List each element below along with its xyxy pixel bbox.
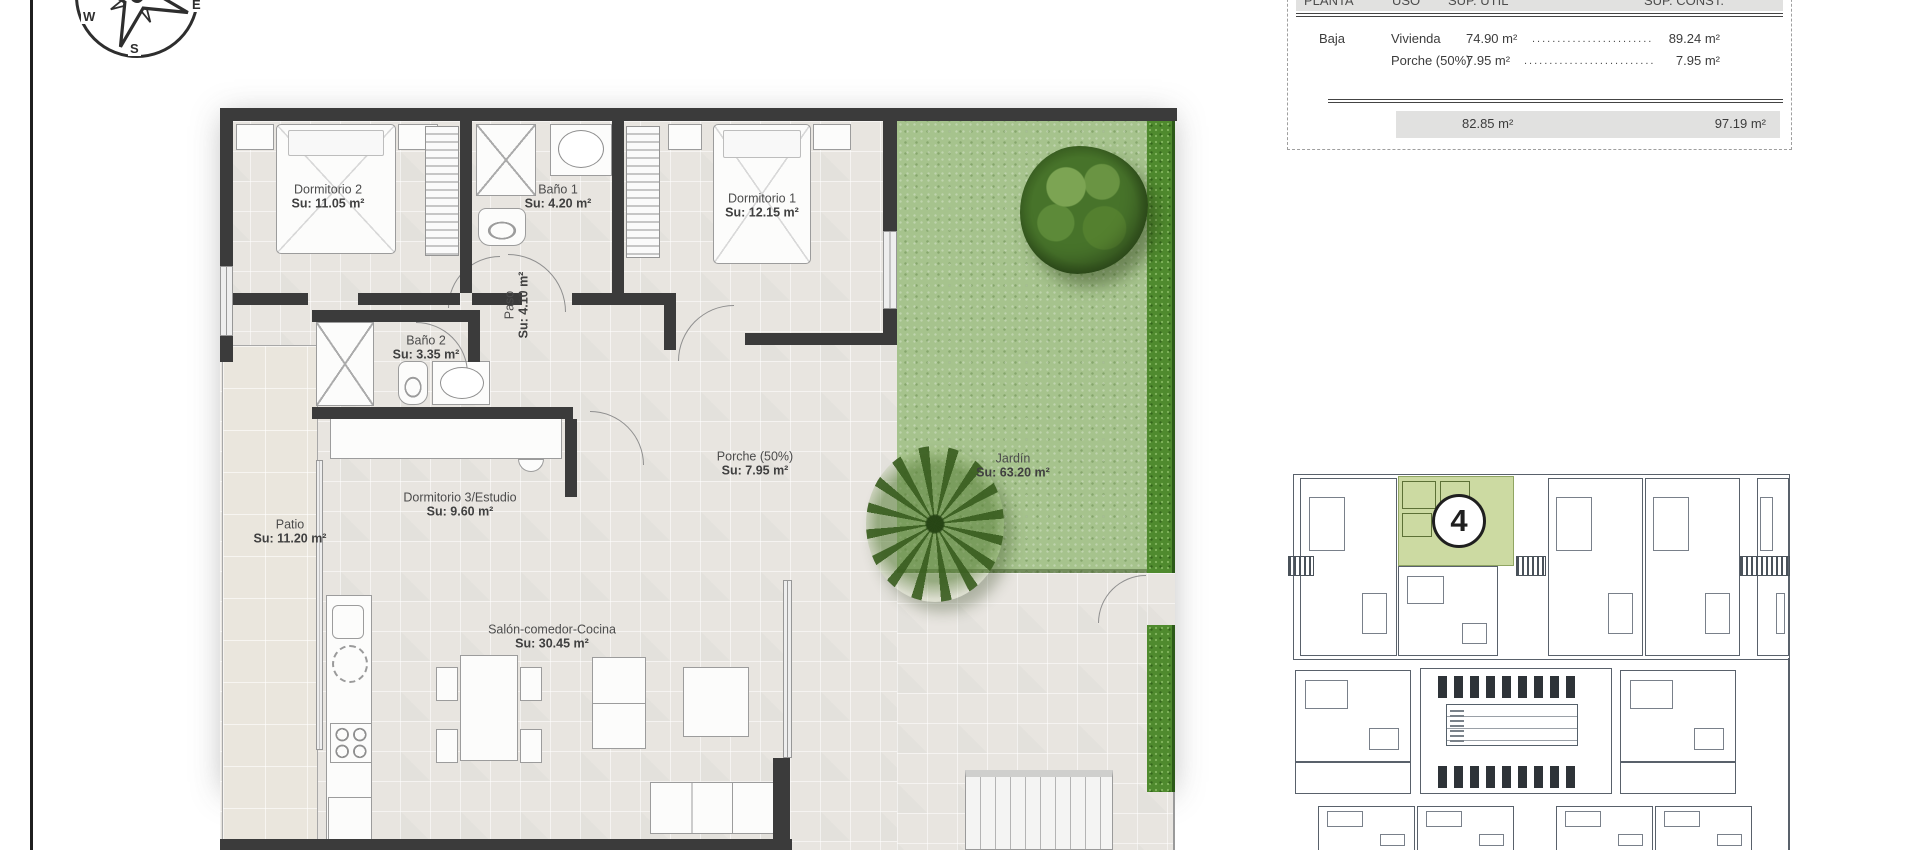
nightstand (668, 124, 702, 150)
total-sup-const: 97.19 m² (1715, 116, 1766, 131)
stairs-hatch (1288, 556, 1314, 576)
header-uso: USO (1392, 0, 1420, 8)
room-label-salon: Salón-comedor-Cocina Su: 30.45 m² (488, 623, 616, 652)
site-apartment-block (1645, 478, 1740, 656)
header-sup-const: SUP. CONST. (1644, 0, 1724, 8)
cell-planta: Baja (1319, 31, 1345, 46)
stairs-hatch (1516, 556, 1546, 576)
room-label-porche: Porche (50%) Su: 7.95 m² (717, 450, 793, 479)
sheet-border-line (30, 0, 33, 850)
stove (330, 723, 372, 763)
cell-sup-const: 89.24 m² (1656, 31, 1720, 46)
room-area: Su: 4.10 m² (517, 272, 531, 339)
dining-table (460, 655, 518, 761)
table-rule (1296, 13, 1783, 17)
site-apartment-block (1295, 670, 1411, 762)
gate-opening (1147, 573, 1175, 625)
table-header-row: PLANTA USO SUP. ÚTIL SUP. CONST. (1296, 0, 1783, 11)
bed-pillow (723, 130, 801, 158)
wall-segment (312, 310, 480, 322)
wall-segment (312, 407, 573, 419)
cooktop (332, 645, 368, 683)
room-name: Baño 2 (393, 334, 460, 348)
room-name: Dormitorio 2 (292, 183, 365, 197)
cell-sup-const: 7.95 m² (1656, 53, 1720, 68)
window (883, 231, 897, 309)
patio-glazing (316, 460, 323, 750)
room-name: Jardín (976, 452, 1050, 466)
wardrobe (425, 126, 459, 256)
wall-segment (572, 293, 676, 305)
room-label-dormitorio-2: Dormitorio 2 Su: 11.05 m² (292, 183, 365, 212)
salon-glazing (783, 580, 792, 758)
room-area: Su: 30.45 m² (488, 637, 616, 651)
wall-segment (220, 336, 233, 362)
wall-segment (468, 322, 480, 362)
site-apartment-block (1318, 806, 1415, 850)
sun-loungers (1438, 766, 1580, 788)
floor-plan: Dormitorio 2 Su: 11.05 m² Baño 1 Su: 4.2… (220, 108, 1177, 850)
sun-loungers (1438, 676, 1580, 698)
swimming-pool (1446, 704, 1578, 746)
site-apartment-block (1548, 478, 1643, 656)
wall-segment (233, 293, 308, 305)
room-name: Dormitorio 1 (725, 192, 799, 206)
exterior-steps (965, 770, 1113, 850)
site-apartment-block (1398, 566, 1498, 656)
site-apartment-block (1620, 670, 1736, 762)
room-area: Su: 7.95 m² (717, 464, 793, 478)
site-edge-line (1788, 658, 1790, 850)
nightstand (813, 124, 851, 150)
wall-segment (612, 121, 624, 293)
room-label-jardin: Jardín Su: 63.20 m² (976, 452, 1050, 481)
kitchen-sink (332, 605, 364, 639)
room-name: Porche (50%) (717, 450, 793, 464)
bed-pillow (288, 130, 384, 156)
unit-number: 4 (1450, 503, 1467, 539)
site-wing-outline (1620, 762, 1736, 794)
leader-dots: ........................................… (1532, 33, 1654, 45)
site-apartment-block (1300, 478, 1397, 656)
room-area: Su: 3.35 m² (393, 348, 460, 362)
site-wing-outline (1295, 762, 1411, 794)
wall-segment (358, 293, 460, 305)
room-name: Baño 1 (525, 183, 592, 197)
total-sup-util: 82.85 m² (1462, 116, 1513, 131)
sofa-three-seat (650, 782, 775, 834)
sink (558, 130, 604, 168)
room-area: Su: 4.20 m² (525, 197, 592, 211)
nightstand (236, 124, 274, 150)
wall-segment (883, 121, 897, 231)
table-rule (1328, 99, 1783, 103)
room-name: Patio (254, 518, 327, 532)
stairs-hatch (1740, 556, 1790, 576)
sofa (592, 657, 646, 749)
drawing-sheet: W S E (0, 0, 1920, 850)
highlighted-unit-room (1402, 513, 1432, 537)
armchair (683, 667, 749, 737)
compass-east-label: E (190, 0, 203, 12)
room-label-bano-1: Baño 1 Su: 4.20 m² (525, 183, 592, 212)
site-apartment-block (1556, 806, 1653, 850)
room-name: Salón-comedor-Cocina (488, 623, 616, 637)
window (220, 266, 233, 336)
wall-segment (220, 839, 792, 850)
chair (436, 667, 458, 701)
site-apartment-block (1417, 806, 1514, 850)
room-name: Dormitorio 3/Estudio (403, 491, 516, 505)
wall-segment (220, 108, 233, 266)
wall-segment (773, 758, 790, 850)
site-apartment-block (1655, 806, 1752, 850)
header-planta: PLANTA (1304, 0, 1354, 8)
room-area: Su: 11.20 m² (254, 532, 327, 546)
room-area: Su: 9.60 m² (403, 505, 516, 519)
cell-uso: Vivienda (1391, 31, 1441, 46)
room-label-paso: Paso Su: 4.10 m² (503, 272, 532, 339)
chair (520, 667, 542, 701)
room-area: Su: 12.15 m² (725, 206, 799, 220)
shower (316, 322, 374, 406)
room-label-dormitorio-3: Dormitorio 3/Estudio Su: 9.60 m² (403, 491, 516, 520)
room-area: Su: 63.20 m² (976, 466, 1050, 480)
header-sup-util: SUP. ÚTIL (1448, 0, 1508, 8)
wall-segment (220, 108, 1177, 121)
sink (440, 367, 484, 399)
room-area: Su: 11.05 m² (292, 197, 365, 211)
room-label-dormitorio-1: Dormitorio 1 Su: 12.15 m² (725, 192, 799, 221)
toilet (478, 208, 526, 246)
cell-sup-util: 74.90 m² (1466, 31, 1517, 46)
cell-uso: Porche (50%) (1391, 53, 1470, 68)
wardrobe (626, 126, 660, 258)
room-name: Paso (503, 272, 517, 339)
room-label-bano-2: Baño 2 Su: 3.35 m² (393, 334, 460, 363)
cell-sup-util: 7.95 m² (1466, 53, 1510, 68)
chair (520, 729, 542, 763)
room-label-patio: Patio Su: 11.20 m² (254, 518, 327, 547)
chair (436, 729, 458, 763)
unit-number-badge: 4 (1432, 494, 1486, 548)
garden-hedge-strip (1147, 121, 1175, 792)
compass-south-label: S (128, 41, 141, 56)
surface-area-table: PLANTA USO SUP. ÚTIL SUP. CONST. Baja Vi… (1287, 0, 1792, 150)
wall-segment (664, 305, 676, 350)
leader-dots: ........................................… (1524, 55, 1654, 67)
patio-floor (222, 345, 318, 850)
wall-segment (565, 419, 577, 497)
table-total-row: 82.85 m² 97.19 m² (1396, 111, 1780, 138)
compass-west-label: W (81, 9, 97, 24)
desk (330, 415, 562, 459)
wall-segment (460, 121, 472, 293)
highlighted-unit-room (1402, 481, 1436, 509)
wall-segment (745, 333, 897, 345)
plot-edge-line (1173, 792, 1175, 850)
compass-rose-icon: W S E (75, 0, 199, 58)
